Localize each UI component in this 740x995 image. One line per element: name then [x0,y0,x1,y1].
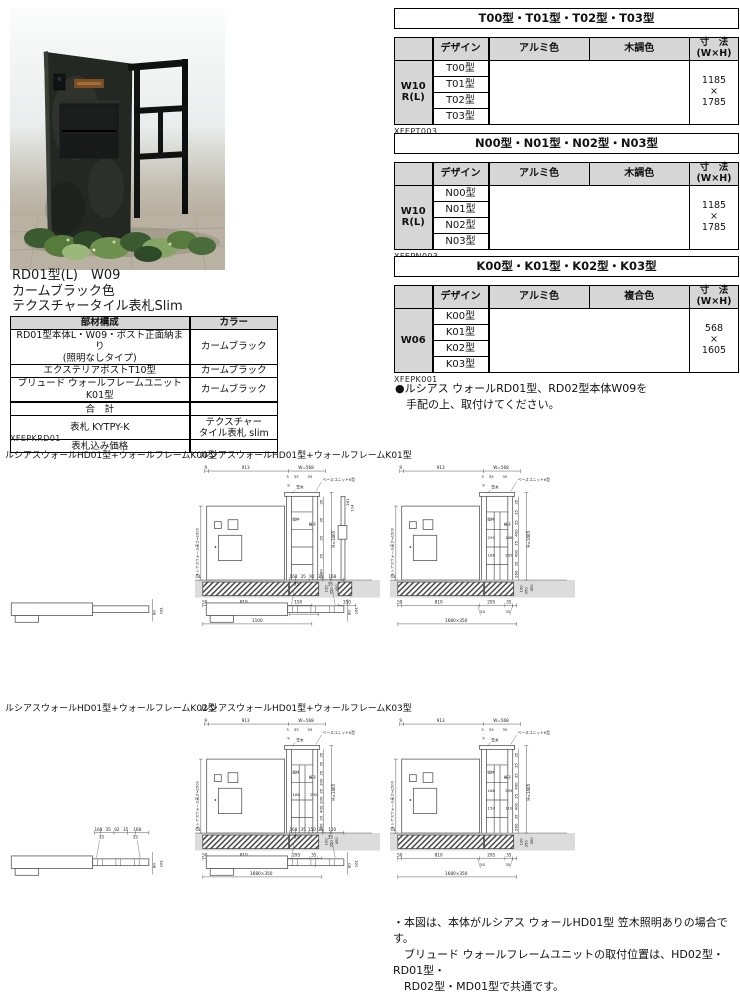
nameplate [74,79,104,88]
design-cell: K02型 [433,340,489,356]
svg-text:810: 810 [435,852,443,857]
svg-text:295: 295 [487,852,495,857]
size-cell: 1185 × 1785 [690,185,739,249]
table-row: RD01型本体L・W09・ポスト正面納まり (照明なしタイプ) カームブラック [11,330,278,365]
svg-text:161: 161 [158,606,163,614]
svg-text:295: 295 [505,553,513,558]
svg-text:168: 168 [290,827,298,832]
svg-text:168: 168 [133,827,141,832]
diagram-label: ルシアスウォールHD01型+ウォールフレームK01型 [200,448,575,461]
svg-text:80: 80 [152,610,157,615]
svg-text:450: 450 [530,837,534,845]
svg-text:161: 161 [353,606,358,614]
product-photo-image [10,8,225,270]
svg-text:161: 161 [158,859,163,867]
svg-text:110: 110 [328,827,336,832]
color-area [489,185,690,249]
svg-text:ベースユニットK型: ベースユニットK型 [518,477,551,482]
spec-table: デザイン アルミ色 木調色 寸 法 (W×H) W10 R(L) T00型 11… [394,37,739,125]
svg-text:35: 35 [514,752,519,757]
components-header-color: カラー [190,317,278,330]
design-cell: N00型 [433,185,489,201]
spec-group-k: K00型・K01型・K02型・K03型 デザイン アルミ色 複合色 寸 法 (W… [394,256,739,384]
svg-text:35: 35 [514,762,519,767]
svg-text:168: 168 [505,535,513,540]
size-header: 寸 法 (W×H) [690,286,739,309]
svg-text:縦枠: 縦枠 [487,517,495,522]
svg-text:35: 35 [514,793,519,798]
size-header: 寸 法 (W×H) [690,38,739,61]
svg-text:92: 92 [114,827,120,832]
color-area [489,308,690,372]
svg-text:80: 80 [152,863,157,868]
product-caption: RD01型(L) W09 カームブラック色 テクスチャータイル表札Slim [12,268,183,315]
svg-text:35: 35 [506,852,512,857]
bottom-note: ・本図は、本体がルシアス ウォールHD01型 笠木照明ありの場合です。 ブリュー… [393,915,739,995]
size-header: 寸 法 (W×H) [690,163,739,186]
svg-text:3: 3 [481,474,484,479]
svg-text:35: 35 [514,561,519,566]
design-header: デザイン [433,286,489,309]
svg-text:92: 92 [309,574,315,579]
svg-text:168: 168 [488,788,496,793]
svg-text:縦枠: 縦枠 [487,770,495,775]
mailbox [60,100,122,158]
components-header-part: 部材構成 [11,317,190,330]
corner-cell [395,286,433,309]
spec-table: デザイン アルミ色 複合色 寸 法 (W×H) W06 K00型 568 × 1… [394,285,739,373]
part-color: テクスチャー タイル表札 slim [190,416,278,440]
design-cell: K01型 [433,324,489,340]
svg-text:9: 9 [482,736,485,741]
table-row: エクステリアポストT10型 カームブラック [11,365,278,378]
spec-title: T00型・T01型・T02型・T03型 [394,8,739,29]
elevation-drawing: 9913W=568335359ベースユニットK型笠木縦枠格子ルシアスウォール高さ… [390,461,575,632]
svg-text:35: 35 [514,814,519,819]
svg-text:35: 35 [503,727,508,732]
elevation-drawing: 9913W=568335359ベースユニットK型笠木縦枠格子ルシアスウォール高さ… [390,714,575,885]
svg-text:295: 295 [488,535,496,540]
svg-text:9: 9 [482,483,485,488]
total-label: 合 計 [11,402,190,416]
svg-text:35: 35 [514,540,519,545]
svg-text:1680×350: 1680×350 [445,618,468,624]
svg-text:笠木: 笠木 [491,485,499,490]
svg-text:格子: 格子 [504,522,512,527]
svg-text:H=1465: H=1465 [526,783,531,800]
svg-text:400: 400 [514,549,519,557]
svg-text:168: 168 [488,553,496,558]
table-row: ブリュード ウォールフレームユニットK01型 カームブラック [11,378,278,402]
design-cell: T02型 [433,92,489,108]
part-name: エクステリアポストT10型 [11,365,190,378]
svg-text:35: 35 [99,835,105,840]
svg-text:35: 35 [301,574,307,579]
svg-text:80: 80 [347,863,352,868]
svg-text:35: 35 [133,835,139,840]
svg-text:168: 168 [328,574,336,579]
plan-view-drawing: 8016116835150351103535 [200,823,385,885]
row-header: W10 R(L) [395,185,433,249]
svg-text:350: 350 [524,840,528,848]
svg-text:35: 35 [505,609,510,614]
svg-text:150: 150 [308,827,316,832]
design-cell: T01型 [433,76,489,92]
svg-text:35: 35 [514,773,519,778]
wood-header: 木調色 [589,163,690,186]
svg-text:W=568: W=568 [493,465,509,470]
corner-cell [395,163,433,186]
svg-text:ベースユニットK型: ベースユニットK型 [518,730,551,735]
design-cell: T00型 [433,60,489,76]
svg-text:168: 168 [290,574,298,579]
catalog-code: XFEPKRD01 [10,434,61,443]
caption-model: RD01型(L) W09 [12,268,183,284]
svg-text:笠木: 笠木 [491,738,499,743]
svg-text:50: 50 [397,852,403,857]
svg-text:35: 35 [294,582,300,587]
svg-text:35: 35 [514,509,519,514]
svg-text:295: 295 [487,599,495,604]
plan-view-drawing: 801611683592351683535 [5,823,190,885]
product-photo [10,8,225,274]
alumi-header: アルミ色 [489,163,590,186]
svg-text:35: 35 [489,727,494,732]
design-cell: T03型 [433,108,489,124]
color-area [489,60,690,124]
svg-text:450: 450 [530,584,534,592]
svg-text:35: 35 [318,827,324,832]
svg-text:913: 913 [437,465,445,470]
bullet-note: ●ルシアス ウォールRD01型、RD02型本体W09を 手配の上、取付けてくださ… [395,381,739,413]
spec-group-n: N00型・N01型・N02型・N03型 デザイン アルミ色 木調色 寸 法 (W… [394,133,739,261]
svg-text:35: 35 [123,827,129,832]
svg-text:80: 80 [347,610,352,615]
part-name: ブリュード ウォールフレームユニットK01型 [11,378,190,402]
svg-text:GL: GL [391,574,397,579]
spec-title: K00型・K01型・K02型・K03型 [394,256,739,277]
svg-text:35: 35 [328,835,334,840]
plan-view-drawing: 80161 [5,570,190,632]
svg-text:35: 35 [505,862,510,867]
design-cell: N02型 [433,217,489,233]
size-cell: 568 × 1605 [690,308,739,372]
svg-text:150: 150 [488,806,496,811]
svg-text:110: 110 [505,806,513,811]
svg-text:W=568: W=568 [493,718,509,723]
spec-title: N00型・N01型・N02型・N03型 [394,133,739,154]
part-color: カームブラック [190,378,278,402]
design-header: デザイン [433,163,489,186]
part-color: カームブラック [190,365,278,378]
part-color: カームブラック [190,330,278,365]
svg-text:35: 35 [503,474,508,479]
svg-text:35: 35 [328,582,334,587]
spec-group-t: T00型・T01型・T02型・T03型 デザイン アルミ色 木調色 寸 法 (W… [394,8,739,136]
intercom [54,74,65,90]
alumi-header: アルミ色 [489,38,590,61]
svg-text:9: 9 [399,718,402,723]
svg-text:格子: 格子 [504,775,512,780]
diagram-k03: ルシアスウォールHD01型+ウォールフレームK03型 8016116835150… [200,701,575,889]
design-header: デザイン [433,38,489,61]
total-row: 合 計 [11,402,278,416]
alumi-header: アルミ色 [489,286,590,309]
svg-text:H=1465: H=1465 [526,530,531,547]
svg-text:400: 400 [514,802,519,810]
caption-plate: テクスチャータイル表札Slim [12,299,183,315]
svg-text:168: 168 [94,827,102,832]
svg-text:35: 35 [301,827,307,832]
plan-view-drawing: 801611683592351683535 [200,570,385,632]
spec-table: デザイン アルミ色 木調色 寸 法 (W×H) W10 R(L) N00型 11… [394,162,739,250]
svg-text:400: 400 [514,782,519,790]
diagram-label: ルシアスウォールHD01型+ウォールフレームK03型 [200,701,575,714]
size-cell: 1185 × 1785 [690,60,739,124]
svg-text:35: 35 [506,599,512,604]
svg-text:35: 35 [294,835,300,840]
svg-text:35: 35 [318,574,324,579]
svg-text:35: 35 [514,520,519,525]
design-cell: N01型 [433,201,489,217]
svg-text:810: 810 [435,599,443,604]
svg-text:100: 100 [520,585,524,593]
corner-cell [395,38,433,61]
svg-text:GL: GL [391,827,397,832]
svg-text:295: 295 [505,788,513,793]
svg-text:9: 9 [399,465,402,470]
table-row: W10 R(L) T00型 1185 × 1785 [395,60,739,76]
components-table: 部材構成 カラー RD01型本体L・W09・ポスト正面納まり (照明なしタイプ)… [10,316,278,453]
svg-text:50: 50 [480,609,485,614]
total-value [190,402,278,416]
svg-text:50: 50 [480,862,485,867]
diagram-k01: ルシアスウォールHD01型+ウォールフレームK01型 8016116835923… [200,448,575,636]
svg-text:35: 35 [489,474,494,479]
design-cell: K03型 [433,356,489,372]
svg-text:1680×350: 1680×350 [445,871,468,877]
table-row: W06 K00型 568 × 1605 [395,308,739,324]
design-cell: N03型 [433,233,489,249]
design-cell: K00型 [433,308,489,324]
wood-header: 木調色 [589,38,690,61]
svg-text:ルシアスウォール高さ≒1500: ルシアスウォール高さ≒1500 [390,780,395,829]
row-header: W06 [395,308,433,372]
svg-text:35: 35 [514,499,519,504]
svg-text:35: 35 [106,827,112,832]
svg-text:913: 913 [437,718,445,723]
svg-text:260: 260 [514,570,519,578]
row-header: W10 R(L) [395,60,433,124]
composite-header: 複合色 [589,286,690,309]
part-name: RD01型本体L・W09・ポスト正面納まり (照明なしタイプ) [11,330,190,365]
svg-text:260: 260 [514,823,519,831]
svg-text:ルシアスウォール高さ≒1500: ルシアスウォール高さ≒1500 [390,527,395,576]
svg-text:100: 100 [520,838,524,846]
svg-text:400: 400 [514,529,519,537]
caption-color: カームブラック色 [12,284,183,300]
svg-text:50: 50 [397,599,403,604]
svg-text:350: 350 [524,587,528,595]
table-row: W10 R(L) N00型 1185 × 1785 [395,185,739,201]
svg-text:3: 3 [481,727,484,732]
svg-text:161: 161 [353,859,358,867]
